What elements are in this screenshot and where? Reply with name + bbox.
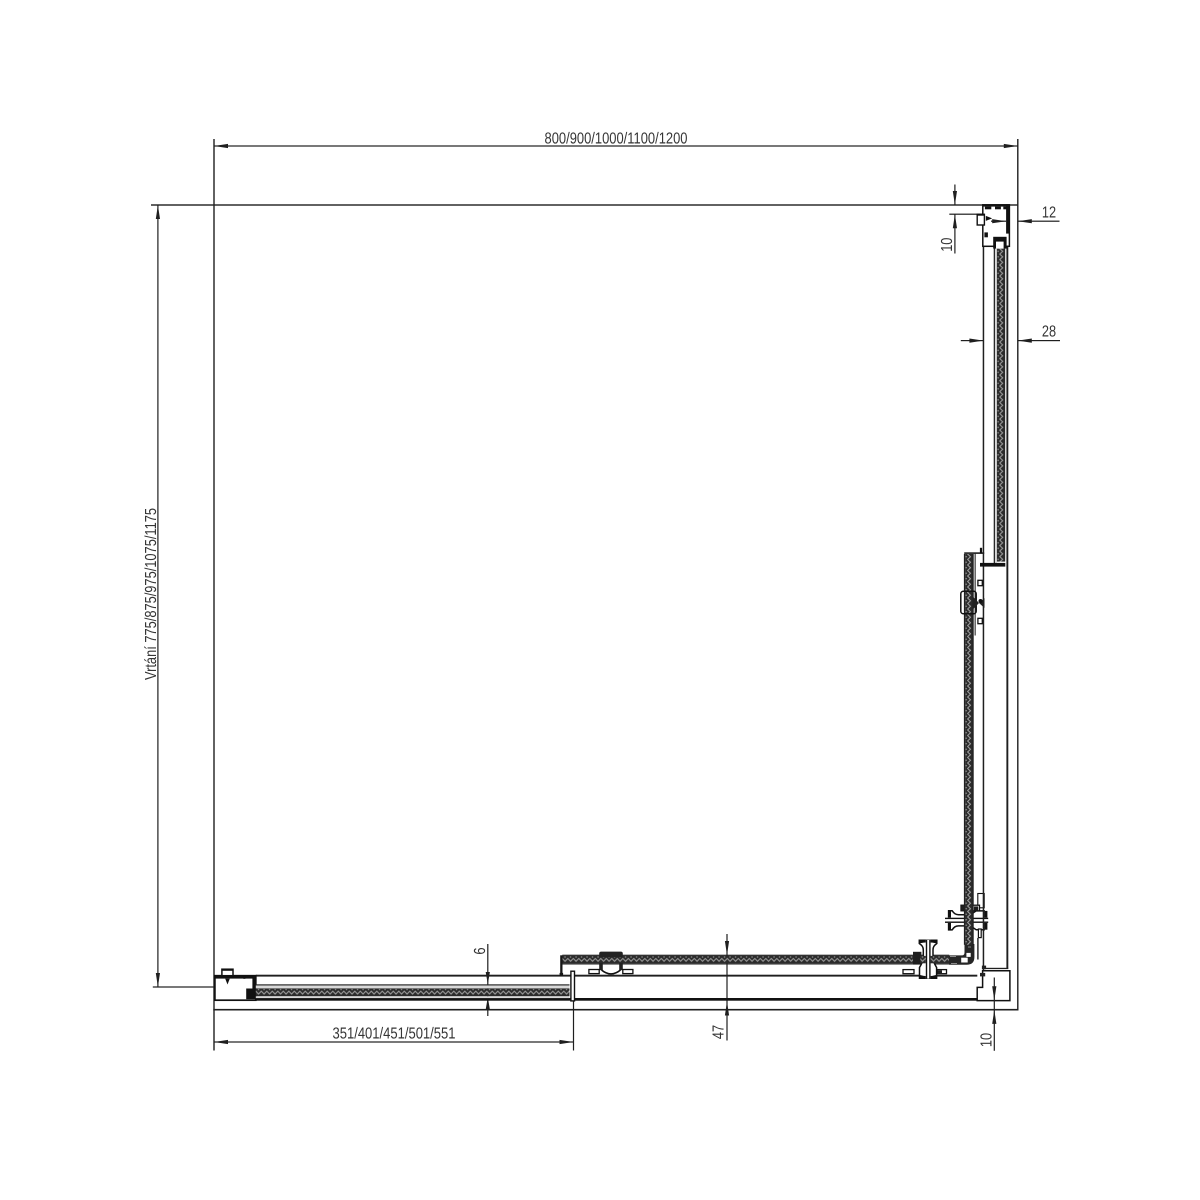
svg-text:10: 10 [939, 238, 956, 252]
svg-text:Vrtání 775/875/975/1075/1175: Vrtání 775/875/975/1075/1175 [143, 508, 160, 680]
svg-text:12: 12 [1042, 204, 1056, 221]
svg-text:28: 28 [1042, 324, 1056, 341]
svg-text:10: 10 [978, 1033, 995, 1047]
svg-text:351/401/451/501/551: 351/401/451/501/551 [333, 1026, 456, 1043]
svg-text:800/900/1000/1100/1200: 800/900/1000/1100/1200 [545, 131, 688, 148]
svg-text:47: 47 [710, 1025, 727, 1039]
svg-text:6: 6 [472, 947, 489, 954]
